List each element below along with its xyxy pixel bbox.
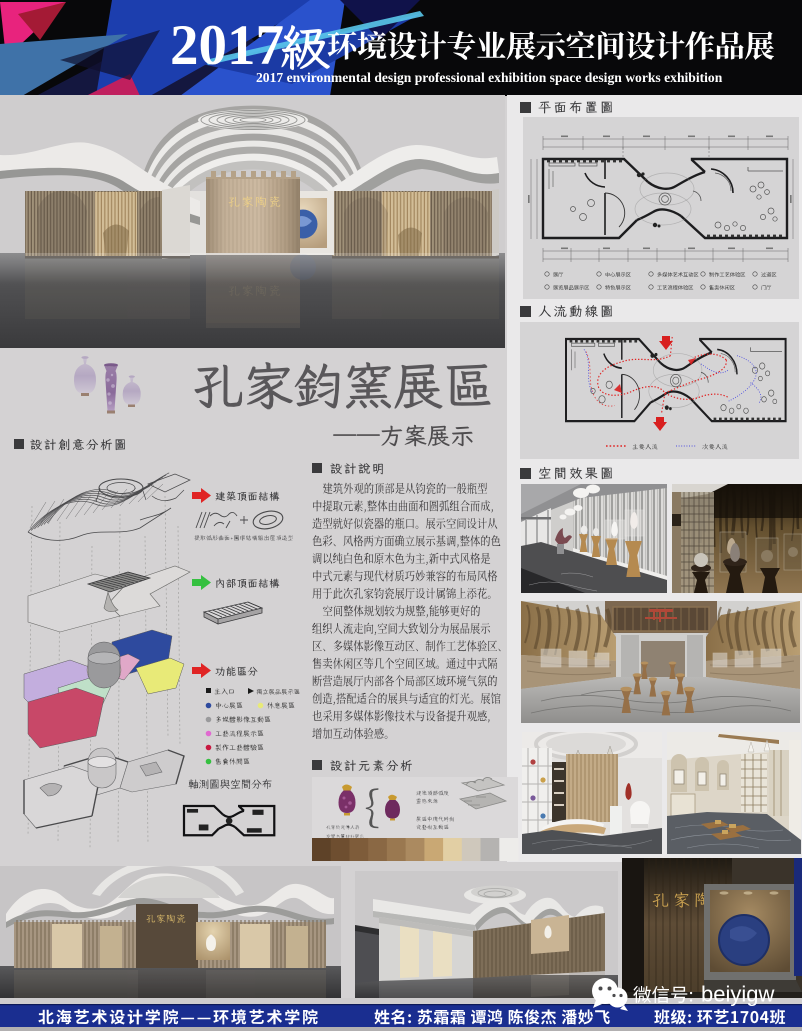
svg-text:beiyigw: beiyigw — [701, 982, 774, 1007]
svg-text:2017: 2017 — [170, 14, 284, 77]
svg-text:2017 environmental design prof: 2017 environmental design professional e… — [256, 70, 723, 85]
